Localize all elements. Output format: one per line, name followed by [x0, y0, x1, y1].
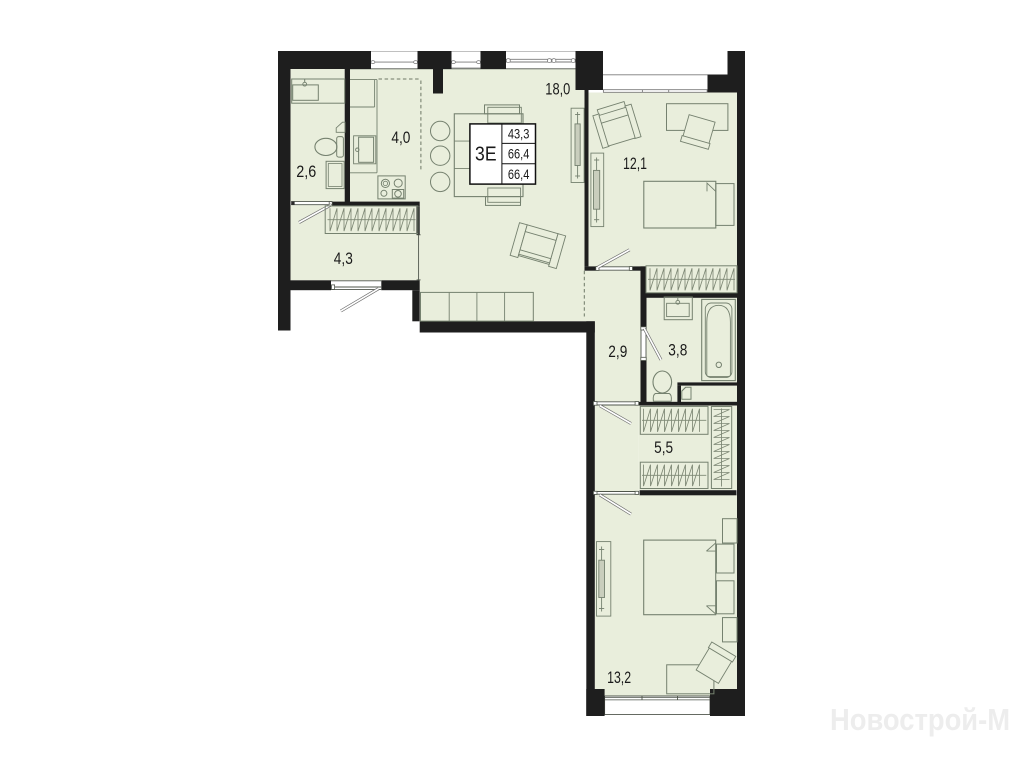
svg-text:12,1: 12,1 — [623, 155, 647, 173]
svg-text:2,6: 2,6 — [296, 163, 316, 181]
svg-text:3,8: 3,8 — [668, 342, 687, 360]
svg-text:13,2: 13,2 — [607, 669, 631, 687]
svg-text:66,4: 66,4 — [508, 166, 530, 182]
svg-text:66,4: 66,4 — [508, 146, 530, 162]
svg-text:Новострой-М: Новострой-М — [830, 702, 1010, 737]
svg-text:3E: 3E — [475, 144, 497, 166]
svg-text:4,0: 4,0 — [391, 129, 410, 147]
svg-text:18,0: 18,0 — [545, 81, 570, 99]
svg-text:43,3: 43,3 — [508, 126, 530, 142]
svg-text:4,3: 4,3 — [334, 250, 353, 268]
svg-text:5,5: 5,5 — [654, 439, 673, 457]
svg-text:2,9: 2,9 — [608, 343, 627, 361]
